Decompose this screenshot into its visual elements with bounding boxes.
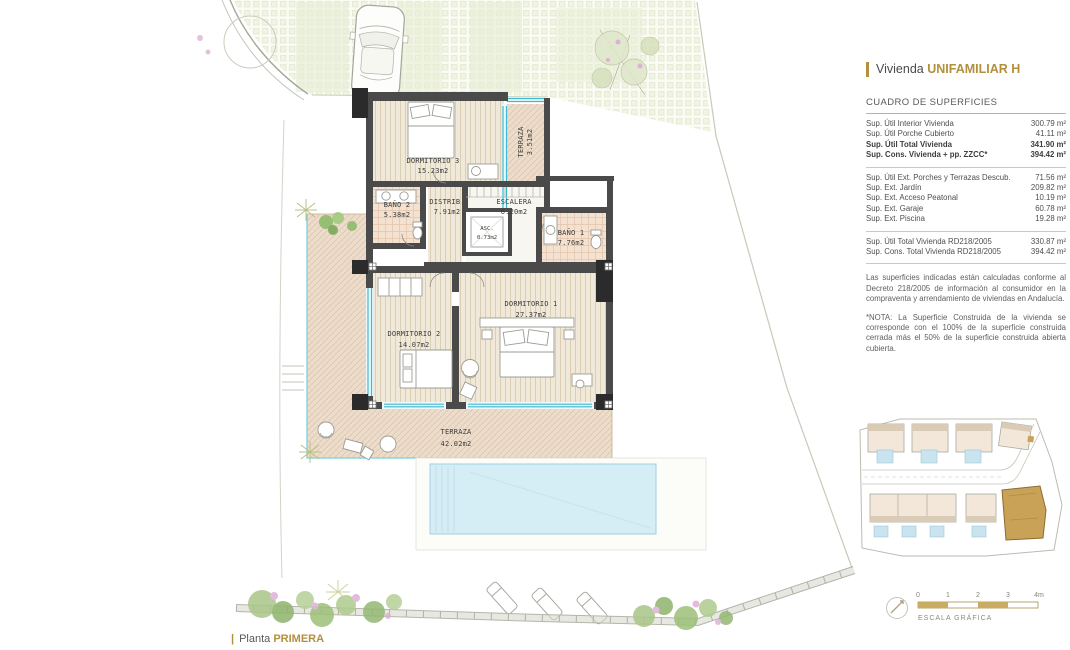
row-label: Sup. Ext. Piscina bbox=[866, 214, 925, 224]
room-label: ASC. bbox=[480, 226, 493, 232]
surfaces-table: Sup. Útil Interior Vivienda 300.79 m² Su… bbox=[866, 114, 1066, 264]
room-area: 27.37m2 bbox=[516, 311, 547, 319]
caption-bar: | bbox=[231, 633, 234, 645]
project-name: UNIFAMILIAR H bbox=[927, 62, 1020, 76]
table-row: Sup. Ext. Piscina 19.28 m² bbox=[866, 214, 1066, 224]
room-label: DISTRIB. bbox=[429, 198, 464, 206]
room-area: 15.23m2 bbox=[418, 167, 449, 175]
row-label: Sup. Útil Porche Cubierto bbox=[866, 129, 954, 139]
room-label: TERRAZA bbox=[517, 126, 525, 157]
table-row: Sup. Útil Total Vivienda 341.90 m² bbox=[866, 140, 1066, 150]
project-type-label: Vivienda bbox=[876, 62, 924, 76]
row-value: 10.19 m² bbox=[1035, 193, 1066, 203]
scale-tick: 3 bbox=[1006, 592, 1010, 599]
table-row: Sup. Ext. Acceso Peatonal 10.19 m² bbox=[866, 193, 1066, 203]
caption-prefix: Planta bbox=[239, 633, 270, 645]
scale-bar: 0 1 2 3 4m ESCALA GRÁFICA bbox=[887, 592, 1045, 622]
row-value: 394.42 m² bbox=[1030, 150, 1066, 160]
table-row: Sup. Ext. Jardín 209.82 m² bbox=[866, 183, 1066, 193]
table-row: Sup. Cons. Vivienda + pp. ZZCC* 394.42 m… bbox=[866, 150, 1066, 160]
table-row: Sup. Útil Porche Cubierto 41.11 m² bbox=[866, 129, 1066, 139]
caption-name: PRIMERA bbox=[273, 633, 324, 645]
row-label: Sup. Útil Total Vivienda bbox=[866, 140, 952, 150]
site-minimap bbox=[860, 419, 1062, 556]
row-label: Sup. Cons. Total Vivienda RD218/2005 bbox=[866, 247, 1001, 257]
surfaces-group: Sup. Útil Interior Vivienda 300.79 m² Su… bbox=[866, 114, 1066, 168]
plan-sheet: DORMITORIO 3 15.23m2 TERRAZA 3.51m2 BAÑO… bbox=[0, 0, 1070, 650]
row-label: Sup. Ext. Jardín bbox=[866, 183, 921, 193]
room-area: 14.07m2 bbox=[399, 341, 430, 349]
room-area: 0.73m2 bbox=[477, 235, 497, 241]
room-area: 6.20m2 bbox=[501, 208, 528, 216]
surfaces-table-title: CUADRO DE SUPERFICIES bbox=[866, 97, 1066, 114]
info-panel: Vivienda UNIFAMILIAR H CUADRO DE SUPERFI… bbox=[866, 62, 1066, 354]
row-value: 19.28 m² bbox=[1035, 214, 1066, 224]
scale-tick: 1 bbox=[946, 592, 950, 599]
room-label: DORMITORIO 1 bbox=[505, 300, 558, 308]
row-value: 394.42 m² bbox=[1031, 247, 1066, 257]
row-label: Sup. Útil Ext. Porches y Terrazas Descub… bbox=[866, 173, 1011, 183]
row-label: Sup. Cons. Vivienda + pp. ZZCC* bbox=[866, 150, 987, 160]
row-value: 60.78 m² bbox=[1035, 204, 1066, 214]
row-value: 341.90 m² bbox=[1030, 140, 1066, 150]
note: Las superficies indicadas están calculad… bbox=[866, 273, 1066, 304]
north-indicator bbox=[887, 598, 908, 619]
room-area: 7.76m2 bbox=[558, 239, 585, 247]
note: *NOTA: La Superficie Construida de la vi… bbox=[866, 313, 1066, 354]
table-row: Sup. Ext. Garaje 60.78 m² bbox=[866, 204, 1066, 214]
surfaces-group: Sup. Útil Ext. Porches y Terrazas Descub… bbox=[866, 168, 1066, 232]
room-label: TERRAZA bbox=[441, 428, 472, 436]
room-label: DORMITORIO 2 bbox=[388, 330, 441, 338]
row-value: 41.11 m² bbox=[1036, 129, 1066, 139]
surfaces-group: Sup. Útil Total Vivienda RD218/2005 330.… bbox=[866, 232, 1066, 265]
row-label: Sup. Ext. Garaje bbox=[866, 204, 923, 214]
scale-tick: 4m bbox=[1034, 592, 1044, 599]
row-label: Sup. Ext. Acceso Peatonal bbox=[866, 193, 958, 203]
row-label: Sup. Útil Interior Vivienda bbox=[866, 119, 954, 129]
room-area: 42.02m2 bbox=[441, 440, 472, 448]
room-area: 3.51m2 bbox=[526, 129, 534, 156]
table-row: Sup. Útil Total Vivienda RD218/2005 330.… bbox=[866, 237, 1066, 247]
row-value: 209.82 m² bbox=[1031, 183, 1066, 193]
scale-label: ESCALA GRÁFICA bbox=[918, 613, 992, 622]
table-row: Sup. Útil Interior Vivienda 300.79 m² bbox=[866, 119, 1066, 129]
plan-caption: |Planta PRIMERA bbox=[231, 633, 324, 645]
project-header: Vivienda UNIFAMILIAR H bbox=[866, 62, 1066, 77]
room-label: BAÑO 2 bbox=[384, 200, 411, 209]
table-row: Sup. Útil Ext. Porches y Terrazas Descub… bbox=[866, 173, 1066, 183]
room-area: 5.38m2 bbox=[384, 211, 411, 219]
room-area: 7.91m2 bbox=[434, 208, 461, 216]
room-label: ESCALERA bbox=[496, 198, 532, 206]
elevator bbox=[464, 210, 510, 254]
row-value: 330.87 m² bbox=[1031, 237, 1066, 247]
row-value: 300.79 m² bbox=[1031, 119, 1066, 129]
scale-tick: 2 bbox=[976, 592, 980, 599]
pool bbox=[416, 458, 706, 550]
room-label: BAÑO 1 bbox=[558, 228, 585, 237]
scale-tick: 0 bbox=[916, 592, 920, 599]
room-label: DORMITORIO 3 bbox=[407, 157, 460, 165]
table-row: Sup. Cons. Total Vivienda RD218/2005 394… bbox=[866, 247, 1066, 257]
row-label: Sup. Útil Total Vivienda RD218/2005 bbox=[866, 237, 992, 247]
notes-container: Las superficies indicadas están calculad… bbox=[866, 273, 1066, 353]
row-value: 71.56 m² bbox=[1035, 173, 1066, 183]
